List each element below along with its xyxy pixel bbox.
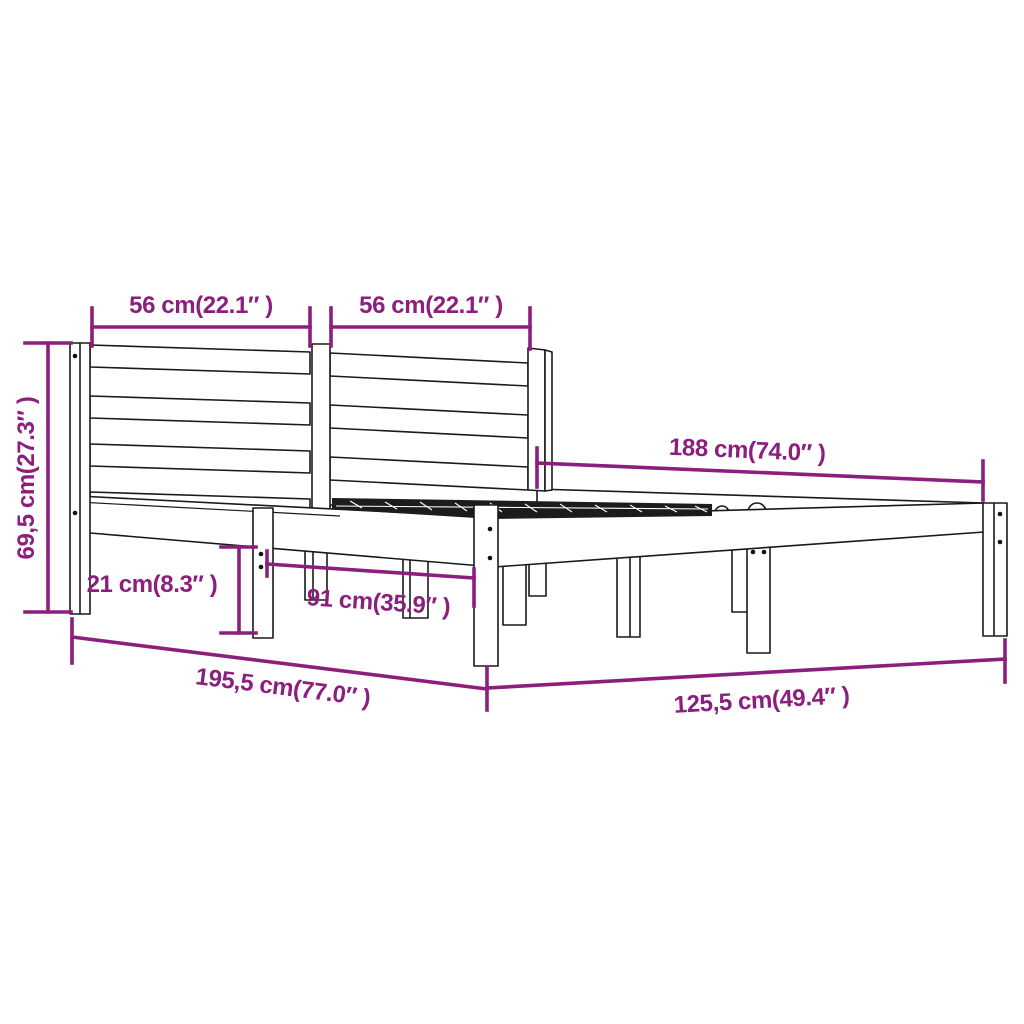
label-headboard-left: 56 cm(22.1″ ) — [129, 292, 273, 319]
front-corner-leg — [474, 505, 498, 666]
headboard-right-post-side — [545, 350, 552, 491]
headboard-left-boards — [90, 345, 310, 521]
label-height: 69,5 cm(27.3″ ) — [13, 397, 40, 560]
front-middle-leg — [253, 508, 273, 638]
label-headboard-right: 56 cm(22.1″ ) — [359, 292, 503, 319]
right-corner-leg — [983, 503, 1007, 636]
dim-clearance-21 — [221, 547, 256, 633]
headboard-center-post — [312, 344, 330, 511]
label-leg-gap: 91 cm(35.9″ ) — [306, 584, 451, 621]
label-clearance: 21 cm(8.3″ ) — [87, 571, 218, 598]
label-width-bottom: 125,5 cm(49.4″ ) — [673, 682, 850, 719]
dim-width-125-5 — [487, 640, 1005, 688]
diagram-canvas: 56 cm(22.1″ ) 56 cm(22.1″ ) 69,5 cm(27.3… — [0, 0, 1024, 1024]
bed-frame-drawing — [70, 343, 1007, 666]
label-length-top: 188 cm(74.0″ ) — [668, 434, 826, 468]
bed-frame-dimension-diagram: 56 cm(22.1″ ) 56 cm(22.1″ ) 69,5 cm(27.3… — [0, 0, 1024, 1024]
